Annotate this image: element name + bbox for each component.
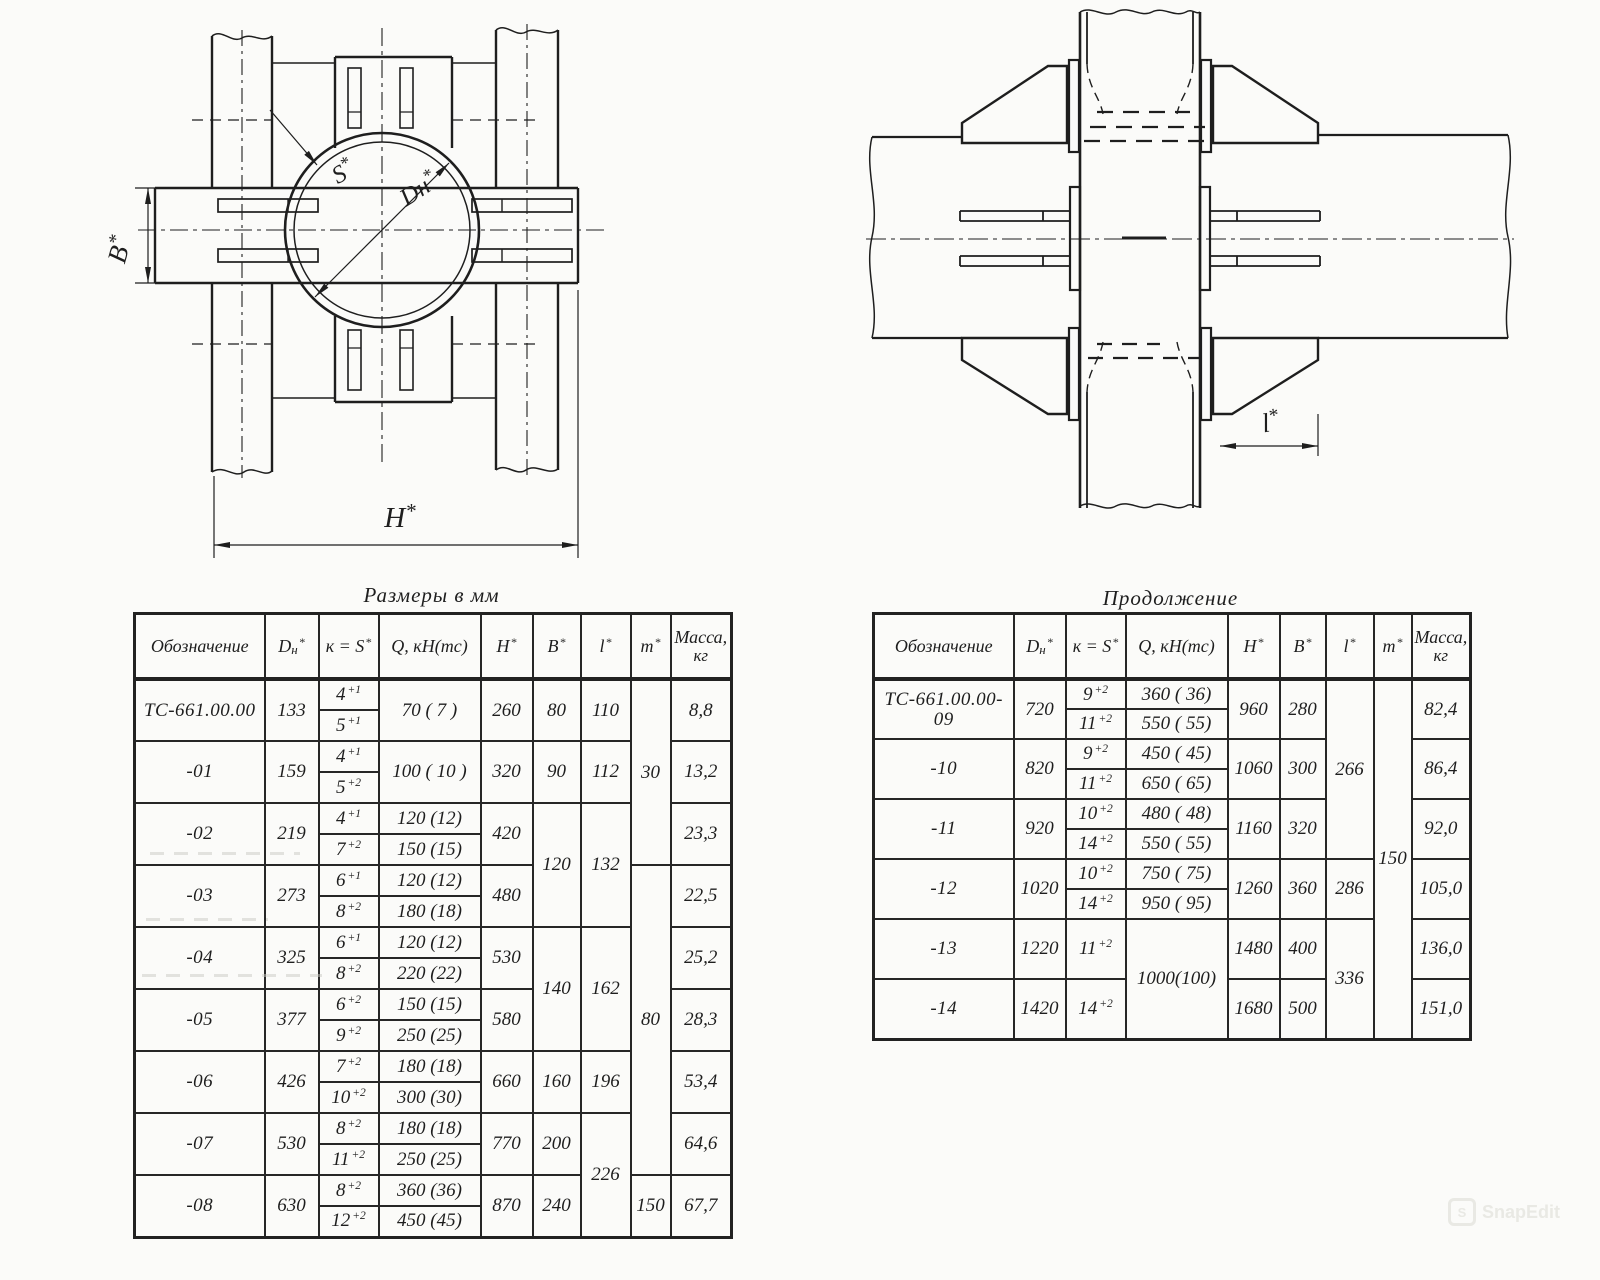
column-header: Q, кН(тс) [1126,614,1228,680]
cell-m: 80 [631,865,671,1175]
cell-mass: 28,3 [671,989,732,1051]
cell-h: 480 [481,865,533,927]
flange-plates [1069,60,1211,420]
cell-load: 950 ( 95) [1126,889,1228,919]
cell-l: 110 [581,679,631,741]
vertical-beam-left [212,30,272,478]
cell-load: 480 ( 48) [1126,799,1228,829]
cell-outer-diameter: 630 [265,1175,319,1237]
cell-designation: -06 [135,1051,265,1113]
cell-mass: 8,8 [671,679,732,741]
cell-thickness: 11+2 [319,1144,379,1175]
cell-b: 500 [1280,979,1326,1039]
hidden-edge-dashes [1084,112,1212,358]
watermark-text: SnapEdit [1482,1202,1560,1223]
column-header: Dн* [1014,614,1066,680]
cell-designation: -02 [135,803,265,865]
column-header: Масса,кг [671,614,732,680]
cell-thickness: 5+1 [319,710,379,741]
cell-outer-diameter: 720 [1014,679,1066,739]
cell-load: 550 ( 55) [1126,709,1228,739]
cell-load: 250 (25) [379,1144,481,1175]
cell-thickness: 10+2 [319,1082,379,1113]
cell-thickness: 14+2 [1066,829,1126,859]
cell-load: 450 ( 45) [1126,739,1228,769]
cell-load: 650 ( 65) [1126,769,1228,799]
cell-b: 200 [533,1113,581,1175]
cell-l: 132 [581,803,631,927]
cell-load: 150 (15) [379,834,481,865]
cell-l: 162 [581,927,631,1051]
cell-b: 300 [1280,739,1326,799]
cell-thickness: 8+2 [319,1113,379,1144]
cell-outer-diameter: 273 [265,865,319,927]
wall-thickness-leader [270,110,317,165]
l-label: l* [1259,405,1282,439]
column-header: Обозначение [135,614,265,680]
cell-b: 160 [533,1051,581,1113]
cell-mass: 105,0 [1412,859,1471,919]
table-title-left: Размеры в мм [133,583,730,608]
column-header: Обозначение [874,614,1014,680]
table-title-right: Продолжение [872,586,1469,611]
cell-designation: -01 [135,741,265,803]
cell-b: 140 [533,927,581,1051]
cell-designation: -07 [135,1113,265,1175]
dimensions-table-left: ОбозначениеDн*к = S*Q, кН(тс)H*B*l*m*Мас… [133,612,733,1239]
cell-mass: 13,2 [671,741,732,803]
s-label: S* [325,152,359,190]
cell-outer-diameter: 820 [1014,739,1066,799]
cell-b: 400 [1280,919,1326,979]
column-header: Масса,кг [1412,614,1471,680]
cell-load: 360 (36) [379,1175,481,1206]
cell-outer-diameter: 1020 [1014,859,1066,919]
cell-l: 226 [581,1113,631,1237]
cell-designation: -14 [874,979,1014,1039]
cell-h: 420 [481,803,533,865]
cell-b: 280 [1280,679,1326,739]
beam-left [870,137,962,338]
cell-b: 80 [533,679,581,741]
cell-load: 70 ( 7 ) [379,679,481,741]
cell-mass: 86,4 [1412,739,1471,799]
column-header: B* [1280,614,1326,680]
cell-l: 286 [1326,859,1374,919]
cell-mass: 67,7 [671,1175,732,1237]
h-label: H* [383,499,416,534]
cell-designation: -11 [874,799,1014,859]
cell-outer-diameter: 1420 [1014,979,1066,1039]
watermark-logo-icon: S [1448,1198,1476,1226]
cell-mass: 22,5 [671,865,732,927]
cell-mass: 136,0 [1412,919,1471,979]
cell-l: 336 [1326,919,1374,1039]
column-header: Q, кН(тс) [379,614,481,680]
cell-h: 320 [481,741,533,803]
cell-b: 320 [1280,799,1326,859]
column-header: l* [581,614,631,680]
cell-load: 120 (12) [379,865,481,896]
cell-thickness: 10+2 [1066,859,1126,889]
cell-thickness: 14+2 [1066,979,1126,1039]
cell-designation: ТС-661.00.00-09 [874,679,1014,739]
cell-l: 266 [1326,679,1374,859]
cell-h: 260 [481,679,533,741]
cell-thickness: 7+2 [319,1051,379,1082]
cell-load: 1000(100) [1126,919,1228,1039]
cell-thickness: 4+1 [319,679,379,710]
cell-load: 100 ( 10 ) [379,741,481,803]
cell-h: 530 [481,927,533,989]
cell-outer-diameter: 159 [265,741,319,803]
cell-thickness: 8+2 [319,958,379,989]
cell-h: 1060 [1228,739,1280,799]
column-header: B* [533,614,581,680]
cell-m: 150 [1374,679,1412,1039]
column-header: m* [1374,614,1412,680]
cell-designation: -13 [874,919,1014,979]
cell-load: 180 (18) [379,1051,481,1082]
cell-m: 150 [631,1175,671,1237]
scan-artifact [142,974,322,977]
cell-l: 112 [581,741,631,803]
cell-load: 750 ( 75) [1126,859,1228,889]
column-header: H* [1228,614,1280,680]
cell-h: 1480 [1228,919,1280,979]
cell-thickness: 11+2 [1066,769,1126,799]
cell-b: 120 [533,803,581,927]
cell-b: 360 [1280,859,1326,919]
cell-thickness: 8+2 [319,1175,379,1206]
cell-mass: 92,0 [1412,799,1471,859]
figure-left-plan-view: S* Dн* B* H* [100,0,660,580]
cell-h: 580 [481,989,533,1051]
gussets [962,66,1318,414]
cell-mass: 23,3 [671,803,732,865]
vertical-beam-right [496,24,558,476]
cell-outer-diameter: 426 [265,1051,319,1113]
cell-thickness: 4+1 [319,741,379,772]
cell-outer-diameter: 325 [265,927,319,989]
cell-mass: 82,4 [1412,679,1471,739]
bottom-clamp-plate [192,316,536,402]
cell-designation: -10 [874,739,1014,799]
cell-designation: -05 [135,989,265,1051]
beam-right [1318,135,1511,338]
cell-outer-diameter: 377 [265,989,319,1051]
pipe-body [1080,10,1200,508]
cell-thickness: 4+1 [319,803,379,834]
column-header: l* [1326,614,1374,680]
cell-thickness: 9+2 [1066,739,1126,769]
cell-load: 120 (12) [379,927,481,958]
cell-load: 250 (25) [379,1020,481,1051]
cell-load: 150 (15) [379,989,481,1020]
column-header: m* [631,614,671,680]
column-header: H* [481,614,533,680]
cell-h: 1260 [1228,859,1280,919]
cell-thickness: 12+2 [319,1206,379,1237]
cell-thickness: 6+1 [319,865,379,896]
cell-load: 220 (22) [379,958,481,989]
cell-m: 30 [631,679,671,865]
watermark: S SnapEdit [1448,1198,1560,1226]
cell-designation: ТС-661.00.00 [135,679,265,741]
cell-thickness: 5+2 [319,772,379,803]
b-dimension [135,188,155,283]
cell-mass: 151,0 [1412,979,1471,1039]
cell-l: 196 [581,1051,631,1113]
cell-h: 870 [481,1175,533,1237]
cell-load: 360 ( 36) [1126,679,1228,709]
cell-thickness: 6+2 [319,989,379,1020]
scan-artifact [146,918,268,921]
cell-mass: 64,6 [671,1113,732,1175]
cell-load: 180 (18) [379,896,481,927]
drawing-sheet: S* Dн* B* H* [0,0,1600,1280]
dimensions-table-continuation: ОбозначениеDн*к = S*Q, кН(тс)H*B*l*m*Мас… [872,612,1472,1041]
cell-designation: -04 [135,927,265,989]
cell-designation: -08 [135,1175,265,1237]
cell-outer-diameter: 920 [1014,799,1066,859]
cell-h: 1160 [1228,799,1280,859]
cell-designation: -12 [874,859,1014,919]
figure-right-side-view: l* [860,0,1520,540]
column-header: Dн* [265,614,319,680]
cell-thickness: 7+2 [319,834,379,865]
cell-h: 1680 [1228,979,1280,1039]
cell-mass: 25,2 [671,927,732,989]
cell-b: 240 [533,1175,581,1237]
cell-h: 960 [1228,679,1280,739]
cell-load: 300 (30) [379,1082,481,1113]
scan-artifact [150,852,300,855]
cell-h: 770 [481,1113,533,1175]
column-header: к = S* [319,614,379,680]
cell-outer-diameter: 1220 [1014,919,1066,979]
cell-thickness: 9+2 [319,1020,379,1051]
cell-load: 450 (45) [379,1206,481,1237]
cell-thickness: 11+2 [1066,919,1126,979]
cell-outer-diameter: 530 [265,1113,319,1175]
cell-thickness: 11+2 [1066,709,1126,739]
cell-outer-diameter: 133 [265,679,319,741]
cell-h: 660 [481,1051,533,1113]
cell-load: 550 ( 55) [1126,829,1228,859]
cell-outer-diameter: 219 [265,803,319,865]
cell-load: 120 (12) [379,803,481,834]
cell-thickness: 8+2 [319,896,379,927]
cell-thickness: 9+2 [1066,679,1126,709]
cell-mass: 53,4 [671,1051,732,1113]
cell-b: 90 [533,741,581,803]
cell-thickness: 14+2 [1066,889,1126,919]
cell-thickness: 10+2 [1066,799,1126,829]
cell-thickness: 6+1 [319,927,379,958]
column-header: к = S* [1066,614,1126,680]
cell-load: 180 (18) [379,1113,481,1144]
b-label: B* [100,233,137,267]
